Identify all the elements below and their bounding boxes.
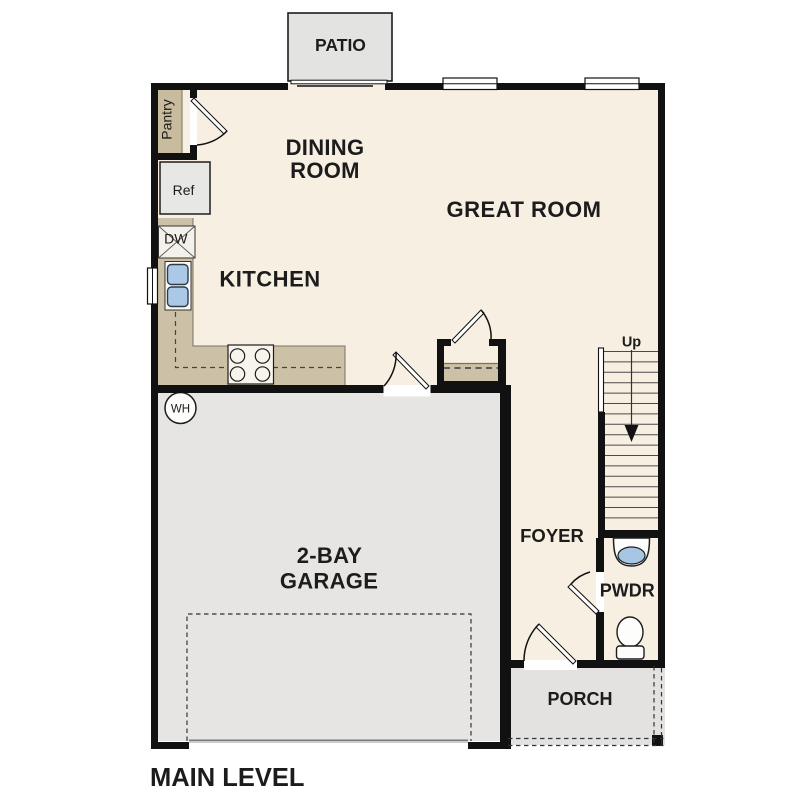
svg-text:KITCHEN: KITCHEN	[219, 267, 320, 292]
svg-text:FOYER: FOYER	[520, 525, 584, 546]
svg-text:Pantry: Pantry	[159, 99, 175, 139]
svg-text:GARAGE: GARAGE	[280, 569, 378, 594]
svg-text:Up: Up	[622, 335, 641, 351]
svg-text:GREAT ROOM: GREAT ROOM	[447, 197, 602, 222]
svg-text:PWDR: PWDR	[600, 581, 655, 601]
svg-text:WH: WH	[171, 404, 190, 416]
svg-text:DINING: DINING	[286, 135, 365, 160]
svg-text:DW: DW	[164, 231, 188, 247]
svg-text:2-BAY: 2-BAY	[297, 543, 363, 568]
svg-text:ROOM: ROOM	[290, 158, 360, 183]
svg-text:PATIO: PATIO	[315, 35, 366, 55]
svg-text:PORCH: PORCH	[547, 689, 612, 709]
svg-text:MAIN LEVEL: MAIN LEVEL	[150, 764, 304, 792]
svg-text:Ref: Ref	[173, 182, 195, 198]
